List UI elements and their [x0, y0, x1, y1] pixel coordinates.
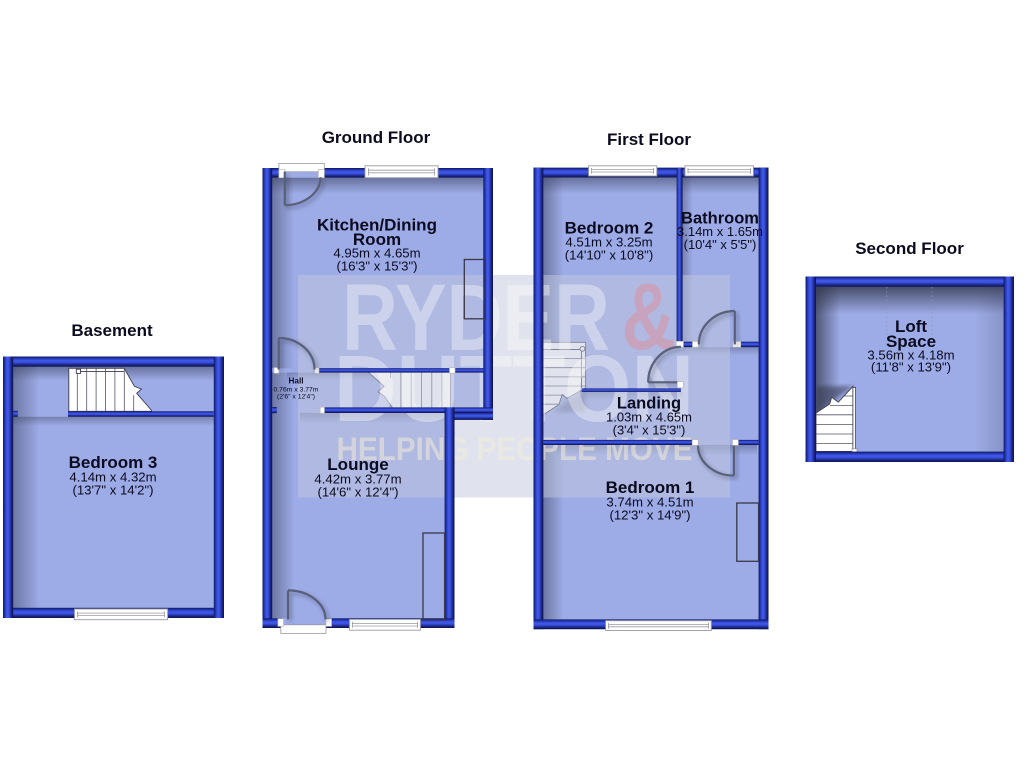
svg-text:(16'3" x 15'3"): (16'3" x 15'3") [336, 259, 417, 274]
svg-text:(10'4" x 5'5"): (10'4" x 5'5") [684, 237, 757, 252]
svg-text:(2'6" x 12'4"): (2'6" x 12'4") [277, 394, 315, 401]
svg-text:(12'3" x 14'9"): (12'3" x 14'9") [609, 508, 690, 523]
svg-text:(3'4" x 15'3"): (3'4" x 15'3") [613, 423, 686, 438]
svg-text:(14'6" x 12'4"): (14'6" x 12'4") [317, 485, 398, 500]
svg-text:(11'8" x 13'9"): (11'8" x 13'9") [871, 360, 951, 375]
svg-text:Basement: Basement [71, 321, 153, 340]
svg-text:(13'7" x 14'2"): (13'7" x 14'2") [72, 483, 153, 498]
svg-text:First Floor: First Floor [607, 130, 691, 149]
svg-text:0.76m x 3.77m: 0.76m x 3.77m [274, 387, 319, 394]
svg-text:(14'10" x 10'8"): (14'10" x 10'8") [565, 248, 653, 263]
svg-text:Second Floor: Second Floor [855, 239, 964, 258]
svg-text:Hall: Hall [288, 377, 303, 386]
svg-text:Ground Floor: Ground Floor [322, 128, 431, 147]
